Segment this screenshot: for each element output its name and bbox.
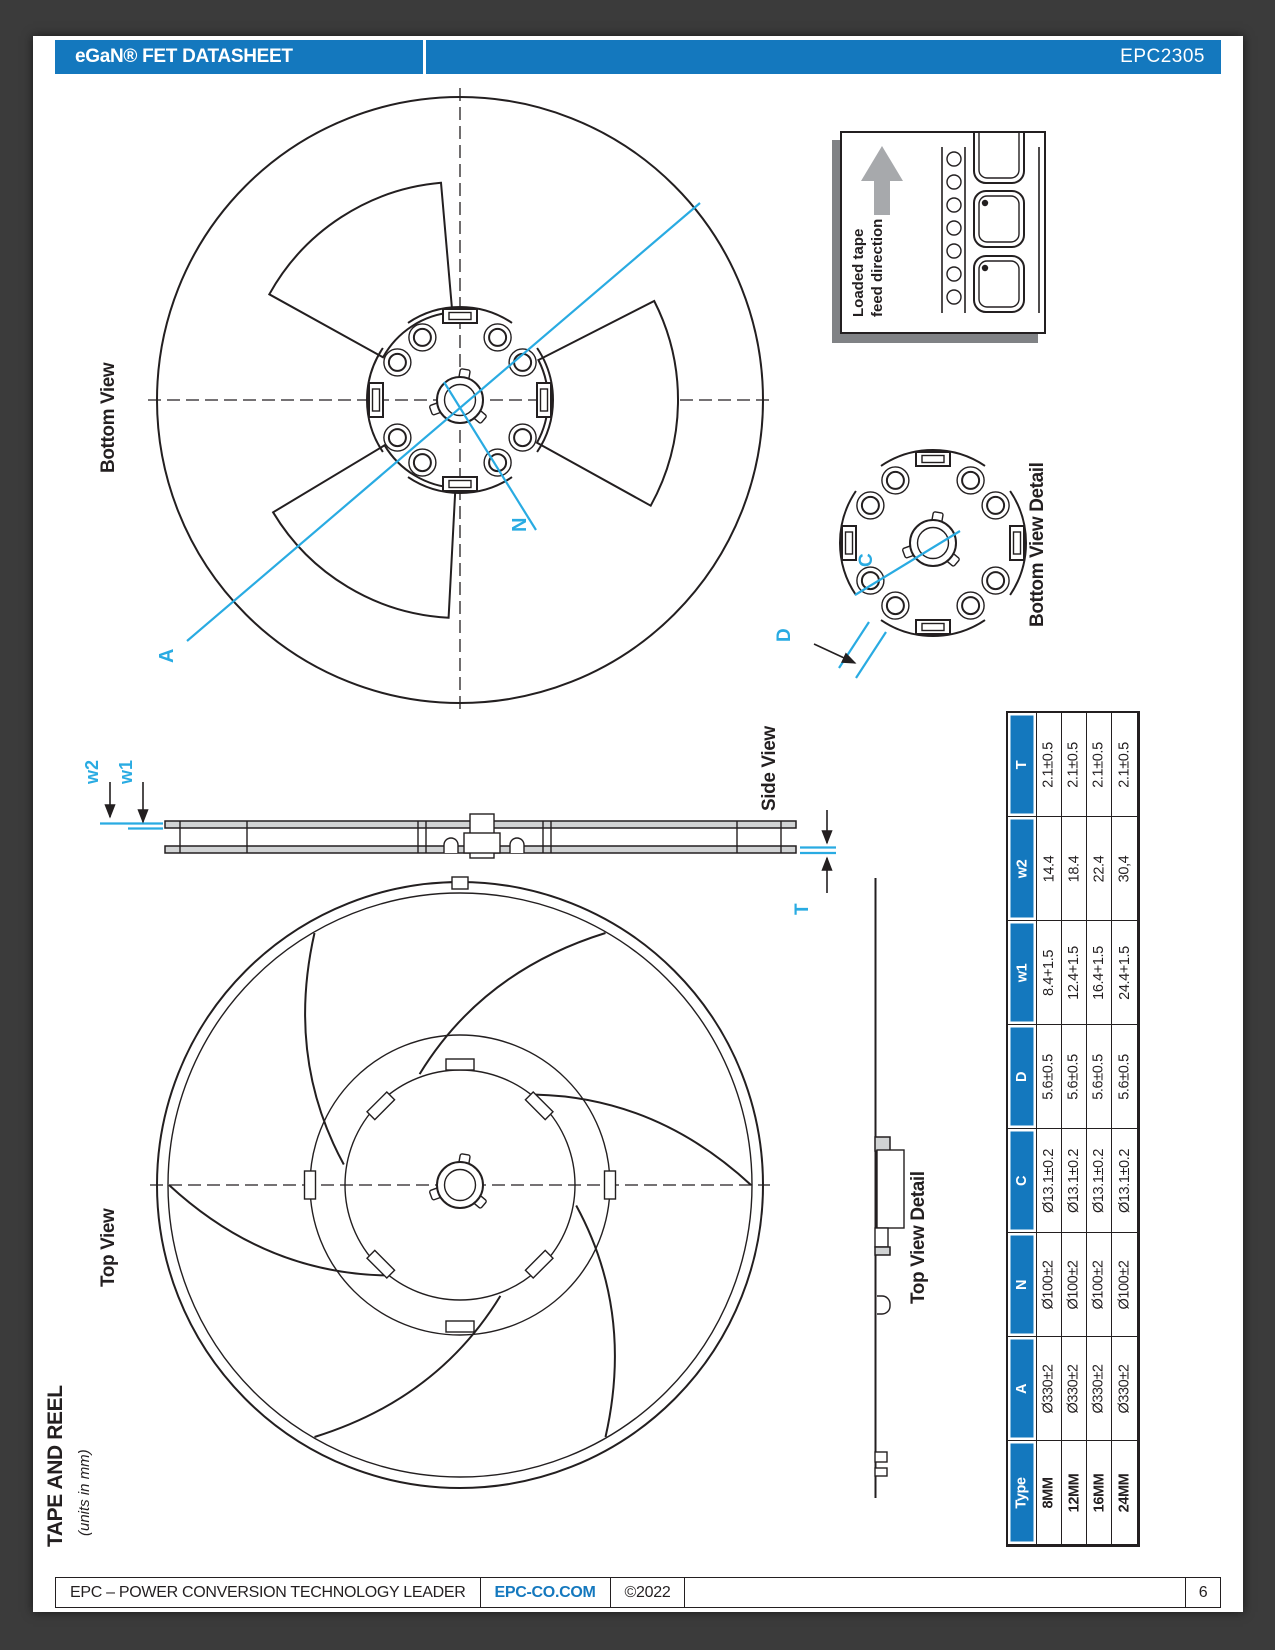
table-cell: Ø13.1±0.2 [1037, 1129, 1062, 1233]
table-cell: 2.1±0.5 [1087, 713, 1112, 817]
table-header-cell: A [1008, 1337, 1037, 1441]
table-cell: 5.6±0.5 [1112, 1025, 1138, 1129]
footer-website-link[interactable]: EPC-CO.COM [481, 1578, 610, 1607]
table-header-cell: w1 [1008, 921, 1037, 1025]
section-subtitle: (units in mm) [77, 1449, 92, 1536]
part-number: EPC2305 [1120, 46, 1221, 68]
table-cell: Ø13.1±0.2 [1062, 1129, 1087, 1233]
datasheet-title: eGaN® FET DATASHEET [55, 46, 293, 68]
table-cell: 5.6±0.5 [1037, 1025, 1062, 1129]
top-view-detail-label: Top View Detail [909, 1171, 928, 1304]
dim-w1-label: w1 [117, 760, 135, 784]
footer-bar: EPC – POWER CONVERSION TECHNOLOGY LEADER… [55, 1577, 1221, 1608]
table-cell: 12.4+1.5 [1062, 921, 1087, 1025]
table-cell: Ø330±2 [1112, 1337, 1138, 1441]
table-header-cell: D [1008, 1025, 1037, 1129]
table-header-cell: T [1008, 713, 1037, 817]
dim-n-label: N [510, 518, 530, 532]
dim-c-label: C [857, 553, 876, 567]
dim-a-label: A [157, 649, 177, 663]
bottom-view-label: Bottom View [99, 363, 118, 473]
top-view-label: Top View [99, 1209, 118, 1287]
footer-company: EPC – POWER CONVERSION TECHNOLOGY LEADER [56, 1578, 480, 1607]
table-cell: Ø13.1±0.2 [1112, 1129, 1138, 1233]
top-view-detail-drawing [875, 878, 904, 1498]
page-number: 6 [1186, 1578, 1220, 1607]
table-header-cell: C [1008, 1129, 1037, 1233]
table-cell: Ø330±2 [1087, 1337, 1112, 1441]
table-header-cell: Type [1008, 1441, 1037, 1545]
table-header-cell: N [1008, 1233, 1037, 1337]
tape-reel-dimension-table: T 2.1±0.5 2.1±0.5 2.1±0.5 2.1±0.5 w2 14.… [1006, 711, 1140, 1547]
table-cell: Ø330±2 [1037, 1337, 1062, 1441]
header-divider [423, 40, 426, 74]
side-view-label: Side View [760, 726, 779, 811]
table-cell: 8MM [1037, 1441, 1062, 1545]
dim-t-label: T [793, 903, 812, 915]
datasheet-page: eGaN® FET DATASHEET EPC2305 TAPE AND REE… [0, 0, 1275, 1650]
table-cell: Ø100±2 [1112, 1233, 1138, 1337]
table-cell: 22.4 [1087, 817, 1112, 921]
table-cell: Ø13.1±0.2 [1087, 1129, 1112, 1233]
bottom-view-detail-drawing [814, 450, 1026, 678]
table-cell: 12MM [1062, 1441, 1087, 1545]
table-cell: 5.6±0.5 [1062, 1025, 1087, 1129]
table-cell: 5.6±0.5 [1087, 1025, 1112, 1129]
bottom-view-detail-label: Bottom View Detail [1028, 462, 1047, 627]
table-cell: 30,4 [1112, 817, 1138, 921]
table-header-cell: w2 [1008, 817, 1037, 921]
table-cell: 16MM [1087, 1441, 1112, 1545]
table-cell: 18.4 [1062, 817, 1087, 921]
footer-spacer [685, 1578, 1185, 1607]
table-cell: 2.1±0.5 [1112, 713, 1138, 817]
table-cell: Ø330±2 [1062, 1337, 1087, 1441]
header-bar: eGaN® FET DATASHEET EPC2305 [55, 40, 1221, 74]
footer-copyright: ©2022 [611, 1578, 685, 1607]
table-cell: Ø100±2 [1087, 1233, 1112, 1337]
feed-direction-text-line2: feed direction [870, 219, 885, 317]
dim-d-label: D [775, 628, 794, 642]
section-title: TAPE AND REEL [45, 1385, 66, 1547]
table-cell: Ø100±2 [1062, 1233, 1087, 1337]
table-cell: 2.1±0.5 [1062, 713, 1087, 817]
table-cell: 24MM [1112, 1441, 1138, 1545]
table-cell: Ø100±2 [1037, 1233, 1062, 1337]
top-view-drawing [150, 877, 770, 1488]
table-cell: 2.1±0.5 [1037, 713, 1062, 817]
table-cell: 16.4+1.5 [1087, 921, 1112, 1025]
table-cell: 14.4 [1037, 817, 1062, 921]
bottom-view-drawing [148, 88, 772, 712]
feed-direction-text-line1: Loaded tape [851, 229, 866, 317]
table-cell: 24.4+1.5 [1112, 921, 1138, 1025]
tape-pocket-drawing [942, 133, 1039, 313]
dim-w2-label: w2 [83, 760, 101, 784]
table-cell: 8.4+1.5 [1037, 921, 1062, 1025]
feed-direction-box: Loaded tape feed direction [840, 131, 1046, 334]
